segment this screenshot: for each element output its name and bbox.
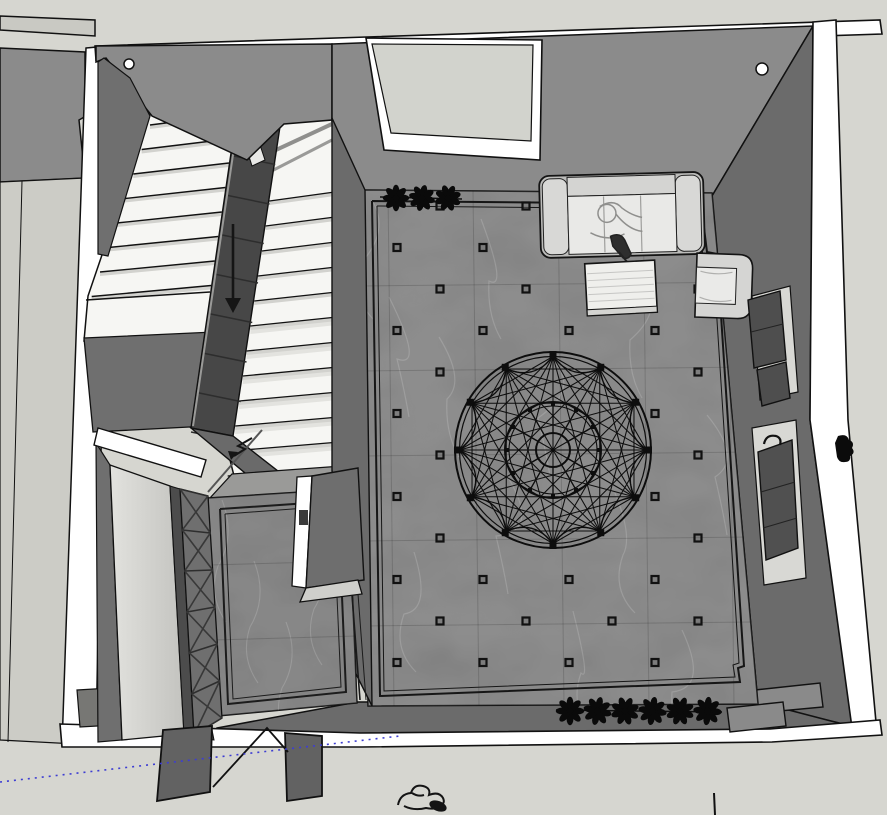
alcove[interactable]	[366, 38, 542, 160]
door-leaf[interactable]	[285, 733, 322, 801]
edge-tick	[714, 793, 715, 815]
plant-icon	[383, 185, 409, 211]
door-hinge	[299, 510, 308, 525]
model-scene	[0, 0, 887, 815]
door-leaf[interactable]	[157, 726, 212, 801]
floor-medallion[interactable]	[454, 351, 652, 549]
armchair[interactable]	[695, 253, 753, 319]
3d-viewport[interactable]	[0, 0, 887, 815]
pilaster	[727, 702, 786, 732]
corner-point	[124, 59, 134, 69]
corner-point	[756, 63, 768, 75]
plant-icon	[556, 697, 584, 725]
coffee-table[interactable]	[585, 260, 658, 316]
